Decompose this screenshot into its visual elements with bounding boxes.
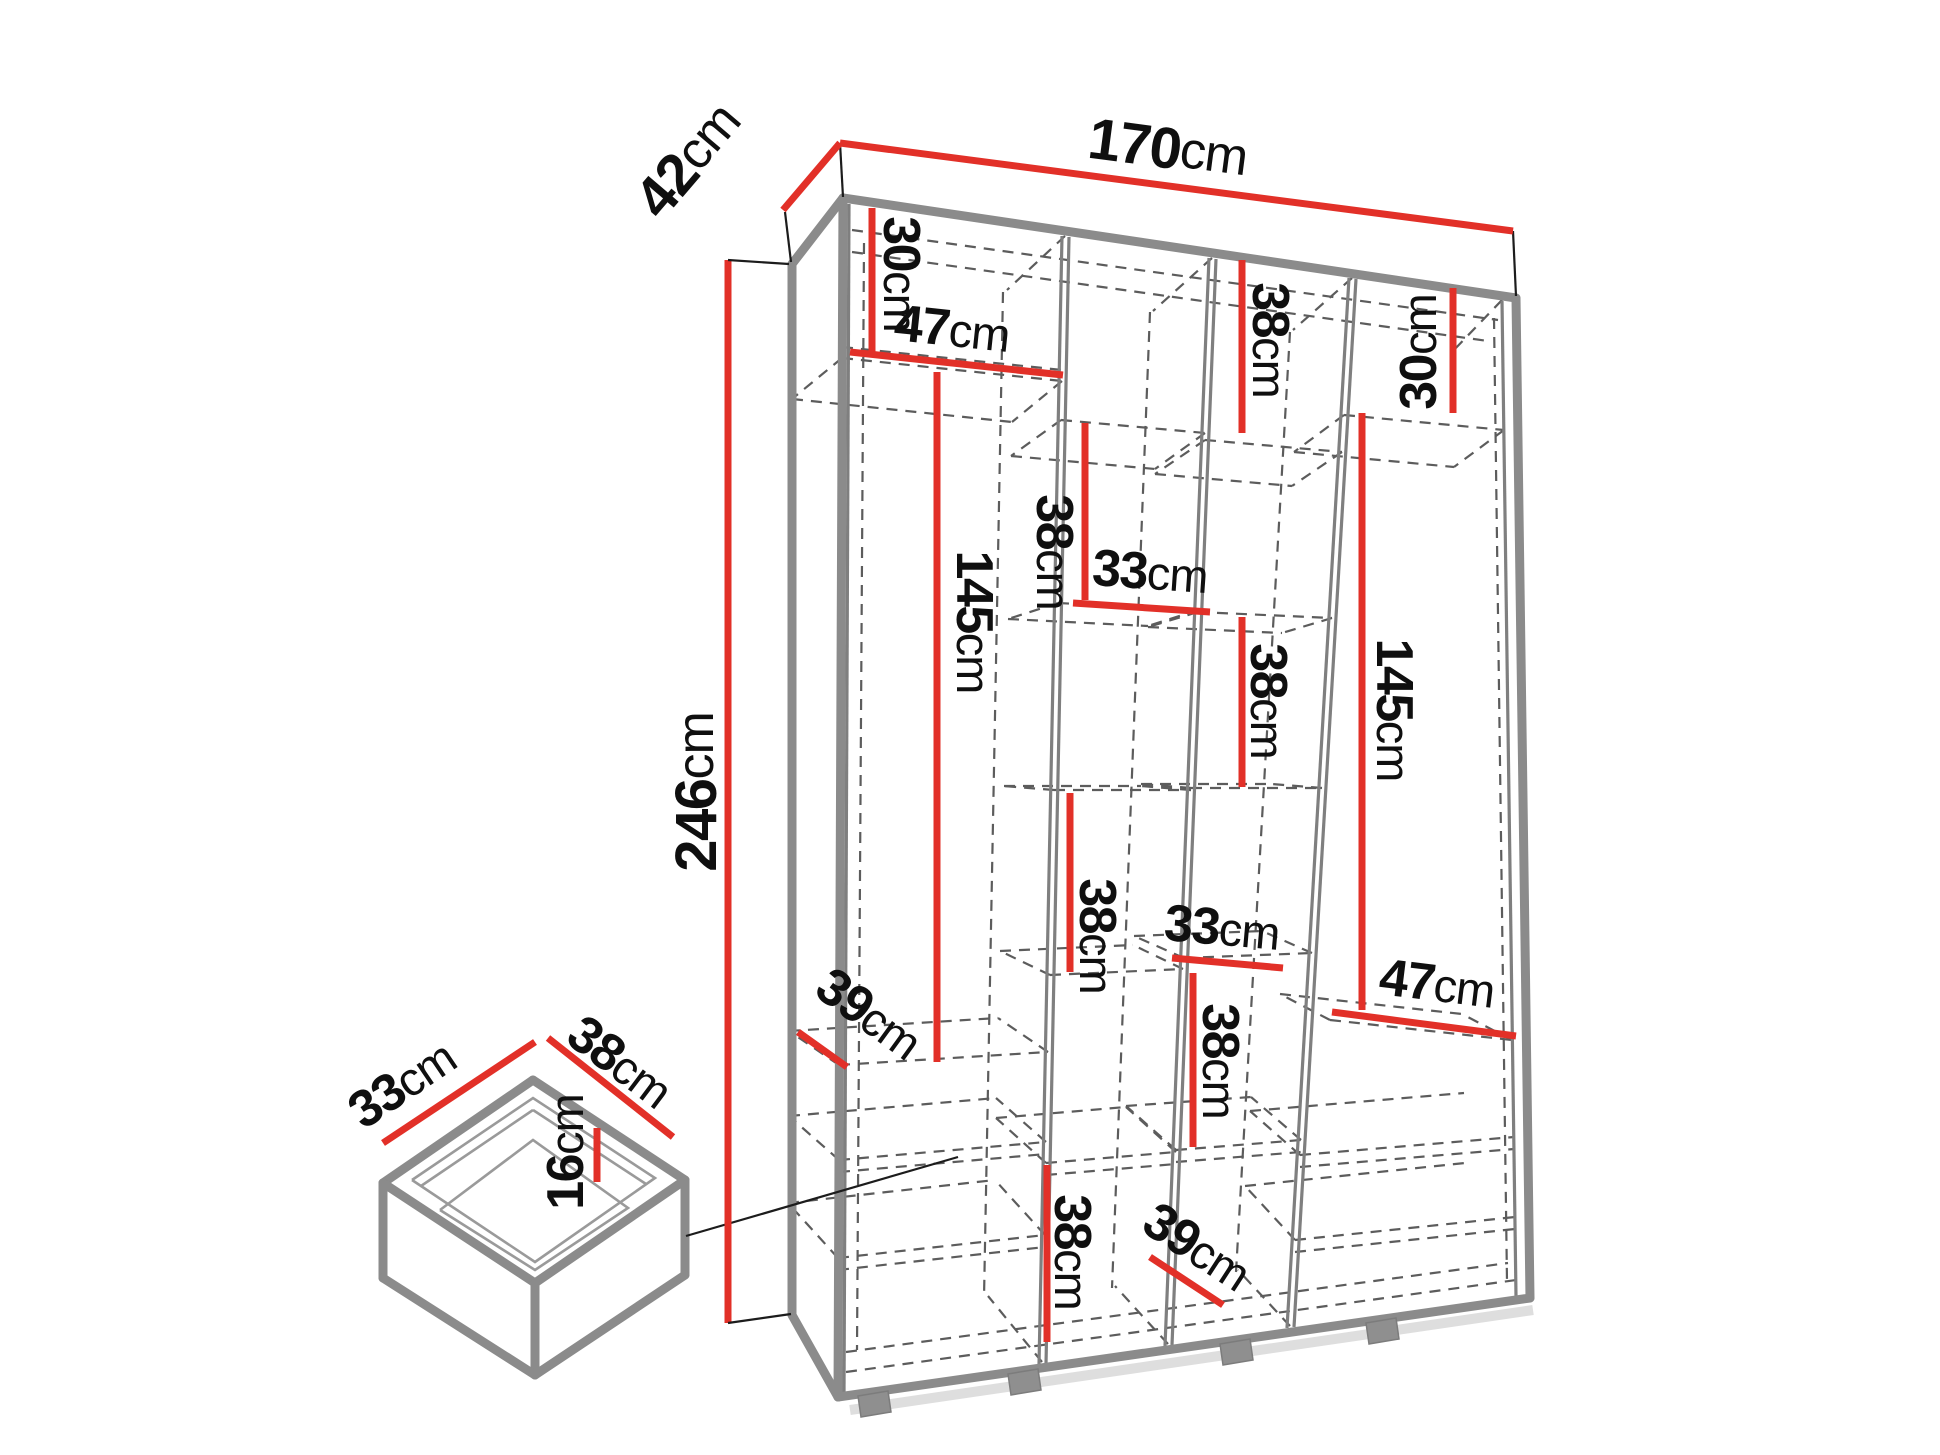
wardrobe-dimension-diagram: 42cm 170cm 246cm 30cm 47cm 145cm 39cm 38… [0,0,1940,1455]
cabinet-foot [1220,1339,1253,1365]
dim-label-col1-145: 145cm [945,551,1003,694]
dim-label-col2-38b: 38cm [1068,878,1126,994]
dim-label-depth-42: 42cm [621,90,754,230]
dim-label-drawer-33: 33cm [338,1028,466,1141]
dim-label-col2-33: 33cm [1090,539,1209,605]
cabinet-foot [858,1391,891,1417]
cabinet-foot [1366,1318,1399,1344]
diagram-canvas: 42cm 170cm 246cm 30cm 47cm 145cm 39cm 38… [0,0,1940,1455]
dim-tick [728,1314,791,1323]
dim-label-col4-145: 145cm [1365,639,1423,782]
dim-label-height-246: 246cm [664,712,729,872]
dim-label-col3-38c: 38cm [1191,1003,1249,1119]
dim-label-col4-30: 30cm [1390,294,1448,410]
dim-label-col3-38b: 38cm [1239,643,1297,759]
dim-label-col3-33: 33cm [1162,894,1282,962]
cabinet-foot [1008,1369,1041,1395]
dim-label-col3-38a: 38cm [1241,282,1299,398]
dim-label-drawer-16: 16cm [537,1094,595,1210]
dim-label-col2-38a: 38cm [1025,494,1083,610]
dim-label-col2-38c: 38cm [1043,1194,1101,1310]
dim-tick [728,260,789,264]
cabinet-front-left-edge [838,198,843,1397]
